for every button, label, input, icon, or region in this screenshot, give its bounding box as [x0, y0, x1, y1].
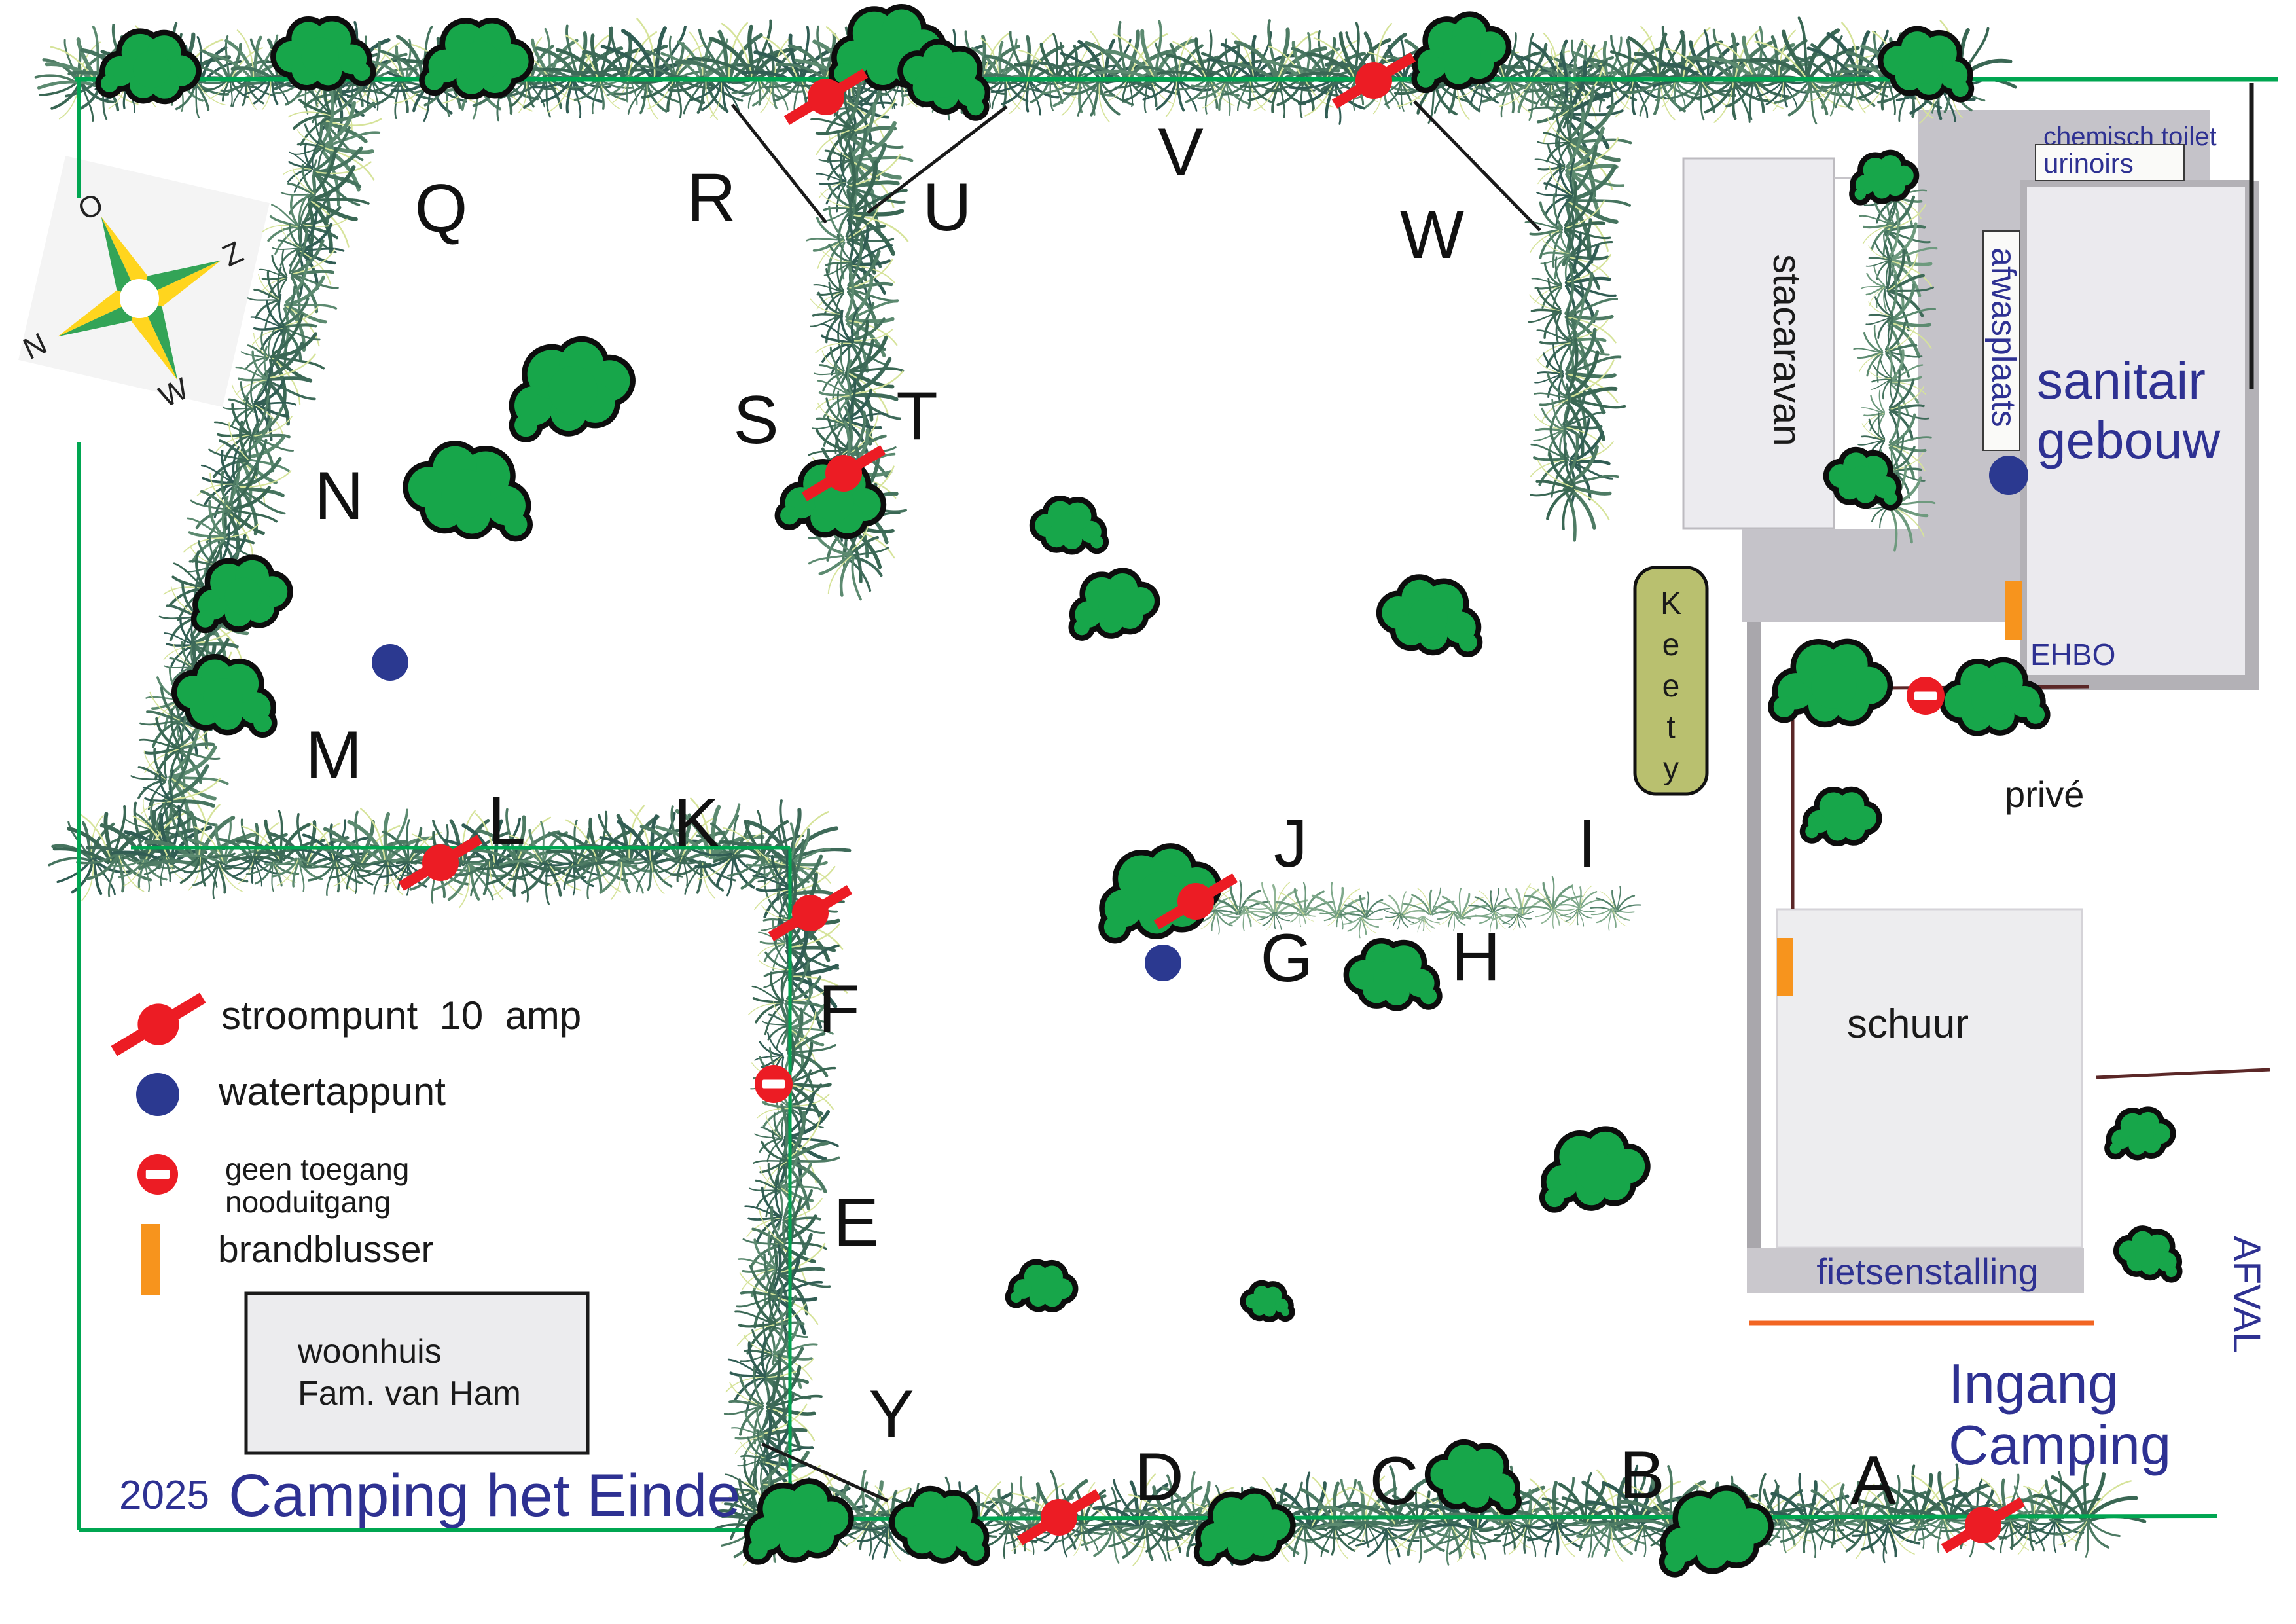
svg-text:G: G: [1261, 920, 1314, 996]
svg-text:t: t: [1666, 710, 1675, 745]
svg-text:woonhuis: woonhuis: [297, 1333, 442, 1371]
svg-text:gebouw: gebouw: [2037, 411, 2220, 469]
svg-text:brandblusser: brandblusser: [218, 1229, 434, 1271]
svg-text:sanitair: sanitair: [2037, 352, 2206, 410]
svg-text:privé: privé: [2005, 774, 2084, 815]
svg-text:C: C: [1369, 1443, 1418, 1519]
svg-text:M: M: [306, 717, 363, 793]
svg-text:V: V: [1158, 115, 1203, 190]
svg-text:Fam. van Ham: Fam. van Ham: [298, 1375, 521, 1413]
svg-text:W: W: [1400, 197, 1464, 273]
svg-text:K: K: [673, 785, 719, 861]
svg-text:watertappunt: watertappunt: [218, 1070, 446, 1113]
svg-text:AFVAL: AFVAL: [2225, 1236, 2268, 1353]
svg-text:urinoirs: urinoirs: [2043, 148, 2134, 179]
svg-text:E: E: [833, 1185, 878, 1261]
svg-text:Y: Y: [869, 1377, 914, 1453]
svg-text:D: D: [1134, 1439, 1183, 1515]
svg-text:fietsenstalling: fietsenstalling: [1816, 1251, 2038, 1292]
svg-text:EHBO: EHBO: [2030, 638, 2115, 672]
svg-text:A: A: [1850, 1443, 1896, 1519]
svg-text:2025: 2025: [119, 1473, 209, 1518]
svg-text:H: H: [1451, 919, 1500, 995]
svg-text:S: S: [733, 382, 778, 458]
svg-text:R: R: [687, 160, 736, 236]
svg-text:afwasplaats: afwasplaats: [1984, 247, 2022, 427]
svg-text:B: B: [1619, 1437, 1664, 1513]
svg-text:U: U: [922, 170, 971, 245]
svg-text:nooduitgang: nooduitgang: [225, 1185, 391, 1219]
svg-text:L: L: [488, 783, 526, 859]
svg-text:I: I: [1578, 806, 1597, 882]
svg-text:Camping het Einde: Camping het Einde: [228, 1462, 741, 1529]
svg-text:stroompunt 10 amp: stroompunt 10 amp: [221, 994, 581, 1038]
svg-text:J: J: [1274, 806, 1308, 882]
svg-text:geen toegang: geen toegang: [225, 1152, 409, 1186]
svg-text:Q: Q: [415, 171, 468, 247]
svg-text:e: e: [1662, 669, 1680, 704]
svg-text:y: y: [1663, 751, 1679, 786]
svg-text:Camping: Camping: [1948, 1415, 2171, 1477]
svg-text:e: e: [1662, 628, 1680, 662]
svg-text:T: T: [896, 378, 938, 454]
svg-text:K: K: [1660, 586, 1681, 621]
svg-text:Ingang: Ingang: [1948, 1353, 2119, 1415]
svg-text:F: F: [818, 971, 860, 1047]
svg-text:schuur: schuur: [1847, 1001, 1969, 1047]
svg-text:N: N: [314, 458, 363, 534]
svg-text:stacaravan: stacaravan: [1765, 254, 1809, 446]
